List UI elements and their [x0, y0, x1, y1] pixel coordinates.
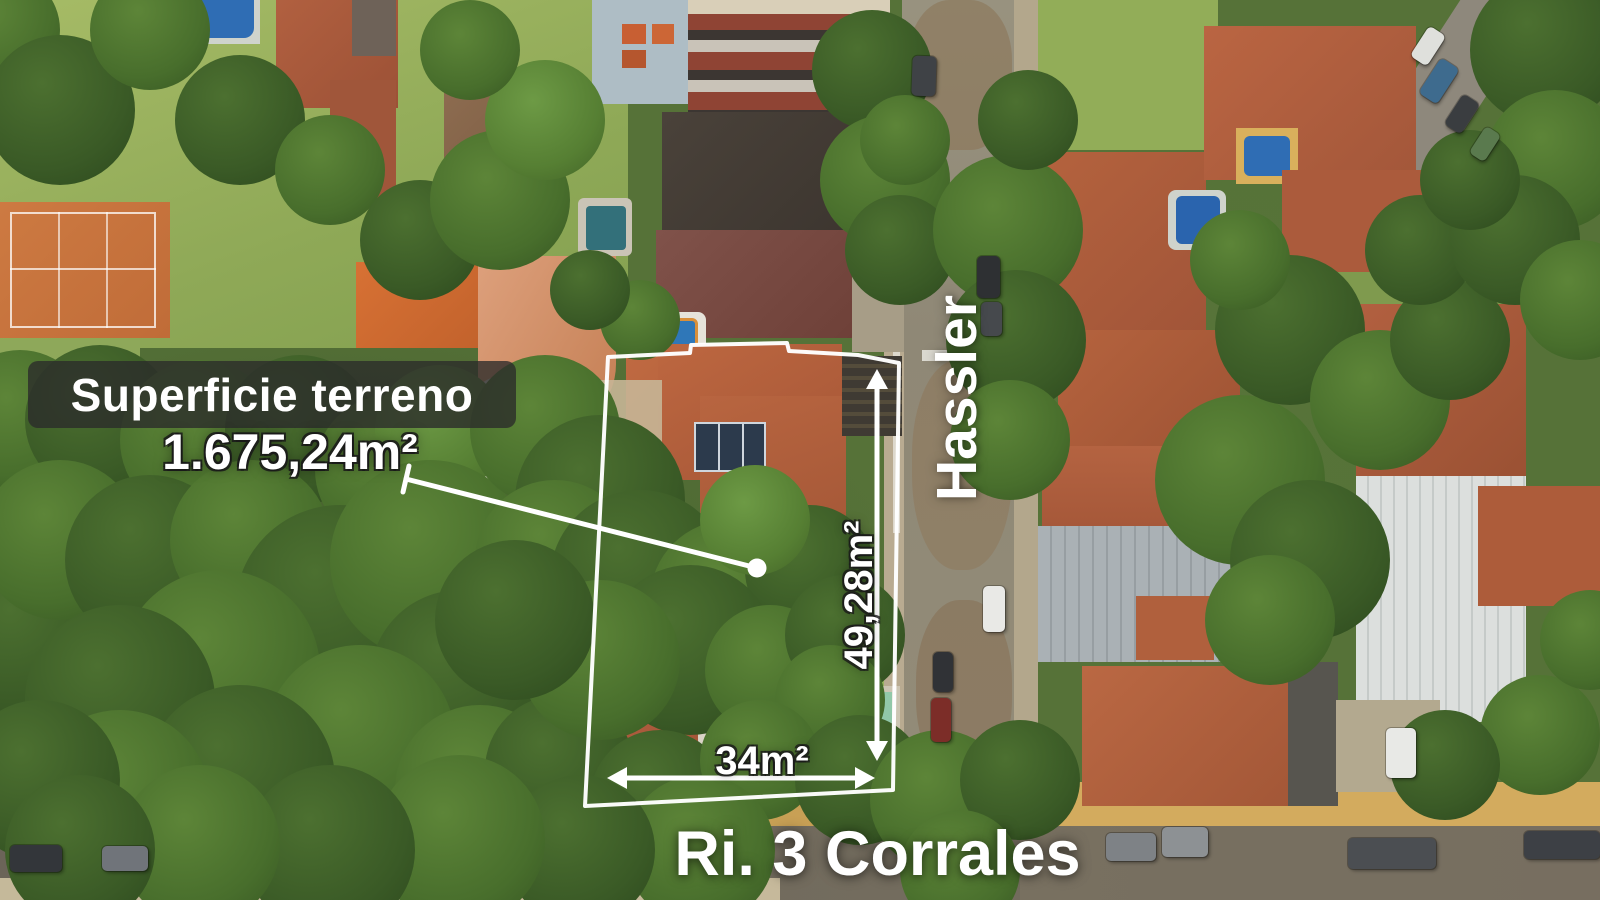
- tennis-court-lines: [10, 212, 156, 328]
- car: [1348, 838, 1436, 869]
- house-roof: [1136, 596, 1214, 660]
- car: [983, 586, 1005, 632]
- car: [931, 698, 951, 742]
- car: [981, 302, 1002, 336]
- building-gray: [592, 0, 702, 104]
- building-orange-panel: [652, 24, 674, 44]
- building-orange-panel: [622, 24, 646, 44]
- carport-dark: [842, 356, 902, 436]
- car: [933, 652, 953, 692]
- tree: [420, 0, 520, 100]
- pool: [586, 206, 626, 250]
- photo-scenery: [0, 0, 1600, 900]
- house-roof-dark-section: [352, 0, 396, 56]
- tennis-court-line: [10, 268, 156, 270]
- building-dark: [1288, 662, 1338, 806]
- car: [102, 846, 148, 871]
- tennis-court-line: [106, 212, 108, 328]
- car: [1106, 833, 1156, 861]
- car: [911, 56, 936, 97]
- aerial-photo: Superficie terreno 1.675,24m² Hassler 49…: [0, 0, 1600, 900]
- tree: [435, 540, 595, 700]
- car: [1524, 831, 1600, 859]
- tennis-court-line: [58, 212, 60, 328]
- tree: [978, 70, 1078, 170]
- tree: [700, 465, 810, 575]
- tree: [1205, 555, 1335, 685]
- car: [1386, 728, 1416, 778]
- car: [10, 845, 62, 872]
- tree: [1420, 130, 1520, 230]
- tree: [950, 380, 1070, 500]
- house-roof: [1082, 666, 1290, 806]
- house-roof: [1478, 486, 1600, 606]
- building-orange-panel: [622, 50, 646, 68]
- car: [1162, 827, 1208, 857]
- car: [977, 256, 1000, 298]
- tree: [550, 250, 630, 330]
- tree: [1190, 210, 1290, 310]
- tree: [860, 95, 950, 185]
